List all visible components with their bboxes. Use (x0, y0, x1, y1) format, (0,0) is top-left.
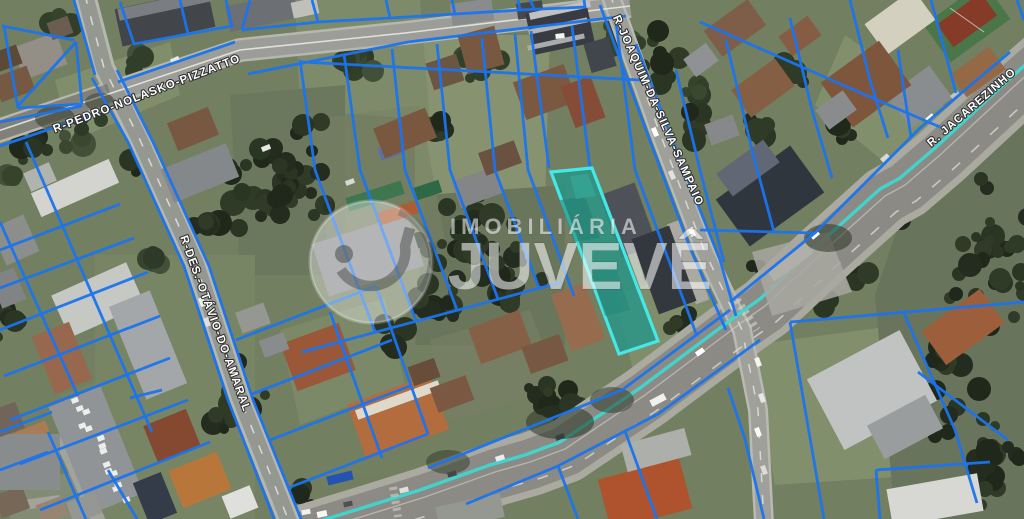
svg-text:JUVEVÊ: JUVEVÊ (448, 229, 712, 304)
